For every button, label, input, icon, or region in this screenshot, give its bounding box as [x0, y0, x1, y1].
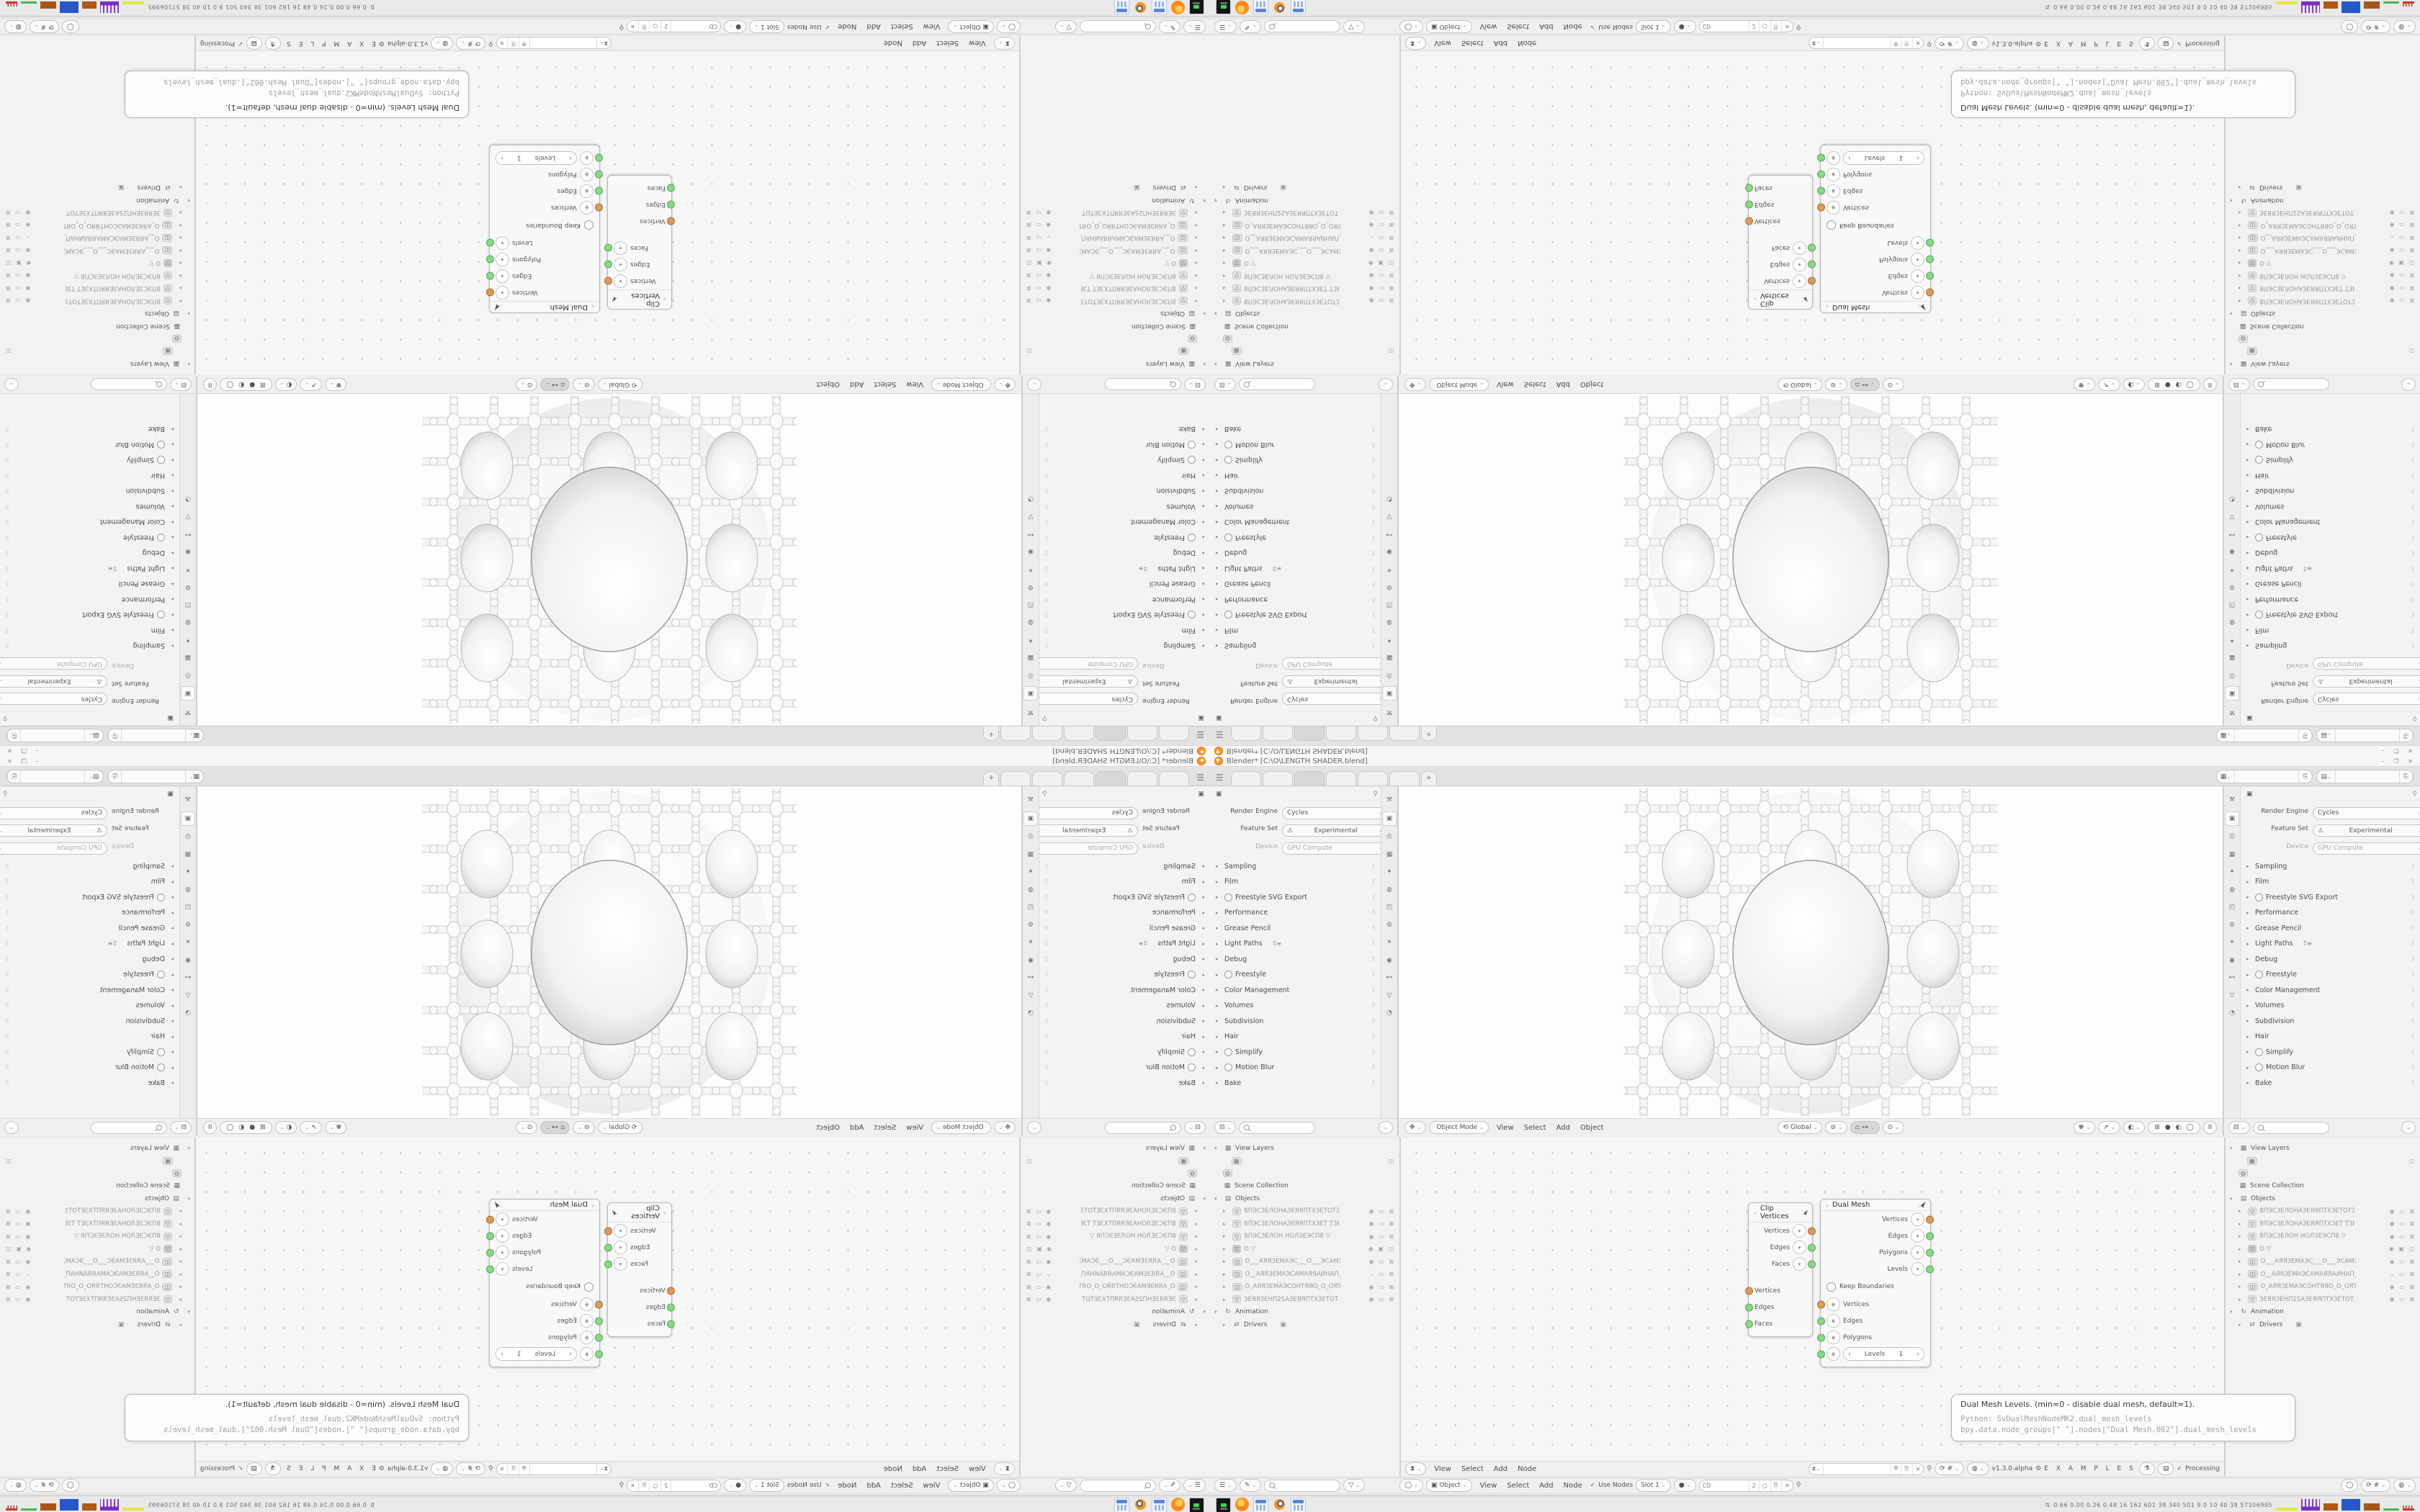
- render-engine-select[interactable]: Cycles⌄: [1282, 807, 1381, 819]
- snap-toggle[interactable]: ⩍⊶⌄: [540, 1121, 570, 1134]
- shader-circle-button[interactable]: ◯: [62, 20, 79, 33]
- properties-tab[interactable]: ◰: [181, 901, 194, 914]
- taskbar-app-icon[interactable]: [1171, 1498, 1185, 1511]
- view-layer-chip[interactable]: ▦: [1232, 1157, 1242, 1165]
- use-nodes-check[interactable]: ✓: [825, 1482, 830, 1489]
- panel-toggle[interactable]: [1224, 1048, 1232, 1056]
- shader-menu-item[interactable]: Select: [886, 1482, 918, 1490]
- keep-boundaries-row[interactable]: Keep Boundaries: [490, 1277, 599, 1296]
- feature-set-select[interactable]: ⚠Experimental⌄: [0, 675, 107, 688]
- properties-tab[interactable]: ⚙: [1383, 919, 1396, 932]
- outliner-object-row[interactable]: ▸ ▽ 8ПЭСЗЕЛОНАЗЕЯЯПТХЗЕТОТЗЕ) ◉ ▭ ⊠: [3, 1205, 181, 1218]
- workspace-tab[interactable]: [1294, 771, 1325, 786]
- taskbar-app-icon[interactable]: [1273, 1, 1286, 15]
- properties-search-input[interactable]: [1239, 379, 1315, 391]
- properties-tab[interactable]: ⚒: [1383, 706, 1396, 719]
- input-socket-row[interactable]: ⋕ Vertices: [490, 1296, 599, 1313]
- properties-tab[interactable]: ✴: [1024, 563, 1037, 576]
- collapse-icon[interactable]: ⌄: [1753, 1210, 1757, 1215]
- output-socket-row[interactable]: Vertices ▾: [608, 273, 671, 289]
- properties-tab[interactable]: ▽: [2226, 989, 2238, 1002]
- scene-name-field[interactable]: [121, 729, 185, 742]
- pin-icon[interactable]: ⚲: [488, 40, 493, 47]
- shader-browse-button[interactable]: ⟳#⌄: [2361, 1479, 2390, 1492]
- snap-toggle[interactable]: ⩍⊶⌄: [540, 378, 570, 391]
- outliner-tree[interactable]: ▾▦View Layers ▦◫ ◍ ▦Scene Collection ▾▤O…: [1021, 1140, 1210, 1476]
- proportional-edit-select[interactable]: ⊙⌄: [1883, 378, 1904, 391]
- editor-type-select[interactable]: ⊟⌄: [1184, 1121, 1206, 1134]
- panel-toggle[interactable]: [1224, 441, 1232, 449]
- input-socket-row[interactable]: ⋕ Polygons: [1821, 166, 1930, 183]
- render-panel-row[interactable]: ▸ Sampling ⠿: [1216, 638, 1378, 654]
- properties-tab[interactable]: ▣: [181, 687, 195, 701]
- output-socket-row[interactable]: Faces ▾: [1749, 240, 1812, 256]
- output-socket-row[interactable]: Edges ▾: [608, 256, 671, 273]
- render-panel-row[interactable]: ▸ Hair ⠿: [1042, 1029, 1204, 1045]
- properties-tab[interactable]: ▦: [1024, 848, 1037, 861]
- properties-tab[interactable]: ▦: [181, 652, 194, 665]
- close-button[interactable]: ✕: [2405, 748, 2416, 755]
- render-panel-row[interactable]: ▸ Freestyle ⠿: [3, 967, 174, 983]
- proportional-edit-select[interactable]: ⊙⌄: [1883, 1121, 1904, 1134]
- view-layer-selector[interactable]: ▤⌄ ⎘: [6, 729, 104, 742]
- shader-menu-item[interactable]: Node: [833, 23, 861, 31]
- shader-browse-button[interactable]: ⟳#⌄: [30, 1479, 59, 1492]
- sverchok-node-editor[interactable]: ⌄ Clip Vertices Vertices ▾ Edges: [1401, 36, 2224, 374]
- properties-tab[interactable]: ◉: [1024, 954, 1037, 967]
- app-menu-icon[interactable]: ☰: [1196, 729, 1204, 739]
- bake-button[interactable]: ⚗: [265, 37, 281, 50]
- object-visibility-icons[interactable]: ⌄ ▭ ⊠: [2390, 1271, 2417, 1277]
- input-socket-row[interactable]: Edges: [608, 1299, 671, 1315]
- properties-tab[interactable]: ▣: [1382, 811, 1397, 826]
- editor-type-select[interactable]: ⊟⌄: [2228, 1121, 2250, 1134]
- scene-selector[interactable]: ▦⌄ ⎘: [107, 729, 205, 742]
- properties-tab[interactable]: ✴: [1383, 936, 1396, 949]
- world-chip[interactable]: ◍: [1188, 1169, 1197, 1177]
- node-editor-menu-item[interactable]: Select: [931, 1465, 964, 1473]
- taskbar-app-icon[interactable]: [1114, 0, 1129, 15]
- taskbar-app-icon[interactable]: [1235, 1498, 1249, 1511]
- render-panel-row[interactable]: ▸ Subdivision ⠿: [3, 1014, 174, 1030]
- render-panel-row[interactable]: ▸ Performance ⠿: [3, 592, 174, 608]
- render-panel-row[interactable]: ▸ Freestyle ⠿: [1042, 967, 1204, 983]
- outliner-brush-select[interactable]: ✎⌄: [1159, 20, 1180, 33]
- properties-tab[interactable]: ⚙: [2226, 581, 2238, 594]
- render-panel-row[interactable]: ▸ Bake ⠿: [2246, 421, 2417, 437]
- object-visibility-icons[interactable]: ⌄ ▭ ⊠: [1023, 235, 1051, 241]
- properties-tab[interactable]: ◍: [1383, 616, 1396, 629]
- object-visibility-icons[interactable]: ◉ ▣ ◫: [1023, 1246, 1052, 1252]
- properties-tab[interactable]: ⚒: [2226, 706, 2238, 719]
- object-visibility-icons[interactable]: ◉ ▭ ⊠: [1369, 1259, 1397, 1265]
- render-panel-row[interactable]: ▸ Debug ⠿: [3, 545, 174, 561]
- render-panel-row[interactable]: ▸ Film ⠿: [2246, 623, 2417, 639]
- properties-tab[interactable]: ⚒: [181, 793, 194, 806]
- keep-boundaries-row[interactable]: Keep Boundaries: [1821, 1277, 1930, 1296]
- render-panel-row[interactable]: ▸ Freestyle ⠿: [3, 530, 174, 546]
- bake-button[interactable]: ⚗: [265, 1462, 281, 1475]
- pin-icon[interactable]: ⚲: [488, 1466, 493, 1472]
- outliner-object-row[interactable]: ▸ ▽ 8ПЭСЗЕЛОНАЗЕЯЯПТХЗЕТОТЗЕ) ◉ ▭ ⊠: [1223, 294, 1397, 307]
- render-panel-row[interactable]: ▸ Motion Blur ⠿: [1042, 1060, 1204, 1076]
- node-canvas[interactable]: ⌄ Clip Vertices Vertices ▾ Edges: [196, 1138, 1019, 1461]
- view-layer-name-field[interactable]: [2336, 729, 2400, 742]
- properties-search-input[interactable]: [91, 379, 167, 391]
- render-panel-row[interactable]: ▸ Debug ⠿: [1042, 952, 1204, 968]
- render-panel-row[interactable]: ▸ Simplify ⠿: [3, 1045, 174, 1061]
- object-visibility-icons[interactable]: ◉ ▭ ⊠: [3, 1259, 30, 1265]
- render-panel-row[interactable]: ▸ Subdivision ⠿: [1216, 1014, 1378, 1030]
- render-panel-row[interactable]: ▸ Performance ⠿: [2246, 905, 2417, 921]
- node-clip-vertices[interactable]: ⌄ Clip Vertices Vertices ▾ Edges: [607, 1202, 672, 1337]
- object-visibility-icons[interactable]: ◉ ▭ ⊠: [1369, 1296, 1397, 1302]
- render-panel-row[interactable]: ▸ Hair ⠿: [3, 468, 174, 484]
- properties-tab[interactable]: ▣: [181, 811, 195, 826]
- render-panel-row[interactable]: ▸ Bake ⠿: [1216, 421, 1378, 437]
- node-canvas[interactable]: ⌄ Clip Vertices Vertices ▾ Edges: [196, 51, 1019, 374]
- outliner-search-input[interactable]: [1080, 21, 1156, 33]
- layout-button[interactable]: ▤: [2158, 37, 2174, 50]
- editor-type-select[interactable]: ⧗⌄: [994, 37, 1015, 50]
- workspace-tab[interactable]: [1095, 726, 1126, 741]
- render-panel-row[interactable]: ▸ Simplify ⠿: [2246, 452, 2417, 468]
- tree-name[interactable]: E X A M P L E S: [2044, 1465, 2136, 1472]
- properties-search-input[interactable]: [91, 1122, 167, 1134]
- outliner-search-input[interactable]: [1080, 1480, 1156, 1492]
- input-socket-row[interactable]: ⋕ Edges: [490, 1313, 599, 1329]
- input-socket-row[interactable]: ⋕ Edges: [1821, 1313, 1930, 1329]
- render-panel-row[interactable]: ▸ Film ⠿: [2246, 874, 2417, 890]
- view-layer-copy-icon[interactable]: ⎘: [2400, 770, 2413, 783]
- outliner-tree[interactable]: ▾▦View Layers ▦◫ ◍ ▦Scene Collection ▾▤O…: [1210, 36, 1399, 372]
- properties-tab[interactable]: ◰: [1024, 901, 1037, 914]
- node-title[interactable]: Dual Mesh: [1832, 303, 1870, 311]
- input-socket-row[interactable]: Vertices: [608, 1282, 671, 1299]
- outliner-object-row[interactable]: ▸ ◫ O_АЯЯЗЕМАЭСОНТЯЯО_O_ОЯТН ◉ ▭ ⊠: [3, 1281, 181, 1294]
- pin-icon[interactable]: ⚲: [1042, 714, 1047, 721]
- workspace-tab[interactable]: [1358, 771, 1388, 786]
- maximize-button[interactable]: ❐: [2390, 748, 2401, 755]
- taskbar-app-icon[interactable]: [1253, 1498, 1268, 1512]
- properties-tab[interactable]: ◰: [2226, 598, 2238, 611]
- outliner-object-row[interactable]: ▸ ◫ O_АЯЯЗЕМАЭСОНТЯЯО_O_ОЯТН ◉ ▭ ⊠: [1023, 219, 1197, 232]
- tree-name-group[interactable]: ⧗⌄ ⛨ ⎘ ✕: [496, 1463, 612, 1475]
- use-nodes-check[interactable]: ✓: [825, 23, 830, 30]
- render-panel-row[interactable]: ▸ Bake ⠿: [1042, 421, 1204, 437]
- workspace-tab[interactable]: [1032, 771, 1062, 786]
- render-panel-row[interactable]: ▸ Volumes ⠿: [1042, 499, 1204, 515]
- add-workspace-tab[interactable]: +: [983, 771, 999, 786]
- shading-mode-buttons[interactable]: ⊞●◐◯: [220, 378, 272, 391]
- render-engine-select[interactable]: Cycles⌄: [0, 807, 107, 819]
- object-visibility-icons[interactable]: ◉ ▣ ◫: [3, 260, 31, 266]
- transform-orientation-select[interactable]: ⟲Global⌄: [598, 1121, 642, 1134]
- workspace-tab[interactable]: [1127, 726, 1157, 741]
- node-editor-menu-item[interactable]: View: [1429, 40, 1456, 48]
- material-preview-select[interactable]: ●⌄: [1674, 1479, 1696, 1492]
- render-panel-row[interactable]: ▸ Grease Pencil ⠿: [3, 576, 174, 592]
- properties-tab[interactable]: ⊷: [1383, 528, 1396, 541]
- panel-toggle[interactable]: [2255, 441, 2263, 449]
- render-panel-row[interactable]: ▸ Grease Pencil ⠿: [1216, 576, 1378, 592]
- outliner-object-row[interactable]: ▸ ▽ ЗЕЯЯЗЕНП2SАЗЕЯЯПТХЗЕТОТЗЕ ◉ ▭ ⊠: [3, 1293, 181, 1306]
- panel-toggle[interactable]: [157, 441, 165, 449]
- input-socket-row[interactable]: Vertices: [1749, 1282, 1812, 1299]
- render-panel-row[interactable]: ▸ Hair ⠿: [1042, 468, 1204, 484]
- scene-selector[interactable]: ▦⌄ ⎘: [107, 770, 205, 783]
- properties-tab[interactable]: ◉: [2226, 546, 2238, 559]
- object-visibility-icons[interactable]: ◉ ▣ ◫: [1368, 1246, 1397, 1252]
- node-editor-menu-item[interactable]: Node: [1512, 1465, 1541, 1473]
- properties-tab[interactable]: ⚙: [1024, 919, 1037, 932]
- outliner-object-row[interactable]: ▸ ▽ O ▽ ◉ ▣ ◫: [3, 257, 181, 270]
- properties-tab[interactable]: ◉: [2226, 954, 2238, 967]
- properties-search-input[interactable]: [2253, 379, 2329, 391]
- collapse-icon[interactable]: ⌄: [591, 305, 595, 310]
- object-visibility-icons[interactable]: ◉ ▭ ⊠: [2390, 1296, 2417, 1302]
- outliner-object-row[interactable]: ▸ ◫ O__АЯЯЗЕМАЭСАМАЯЯАИНАП_С ⌄ ▭ ⊠: [1223, 232, 1397, 245]
- levels-slider-row[interactable]: ⋕ ‹ Levels 1 ›: [1821, 150, 1930, 166]
- feature-set-select[interactable]: ⚠Experimental⌄: [0, 824, 107, 837]
- properties-tab[interactable]: ▣: [2225, 811, 2239, 826]
- snap-toggle[interactable]: ⩍⊶⌄: [1850, 1121, 1880, 1134]
- outliner-object-row[interactable]: ▸ ▽ ЗЕЯЯЗЕНП2SАЗЕЯЯПТХЗЕТОТЗЕ ◉ ▭ ⊠: [3, 207, 181, 220]
- viewport-3d[interactable]: ✥⌄ Object Mode⌄ ViewSelectAddObject ⟲Glo…: [1399, 376, 2223, 726]
- panel-toggle[interactable]: [2255, 1063, 2263, 1071]
- node-dual-mesh[interactable]: ⌄ Dual Mesh Vertices ▾ Edges: [1820, 145, 1931, 313]
- panel-toggle[interactable]: [1188, 456, 1196, 464]
- keep-boundaries-toggle[interactable]: [1827, 1282, 1836, 1292]
- sverchok-node-editor[interactable]: ⌄ Clip Vertices Vertices ▾ Edges: [1401, 1138, 2224, 1476]
- overlays-select[interactable]: ✾⌄: [2074, 1121, 2095, 1134]
- browse-tree-button[interactable]: ⟳#⌄: [1935, 37, 1964, 50]
- material-name-group[interactable]: CD 2 ○ ⎘ ✕: [627, 21, 721, 33]
- window-titlebar[interactable]: Blender* [C:\O\LENGTH SHADER.blend] – ❐ …: [0, 756, 1210, 767]
- minimize-button[interactable]: –: [2378, 748, 2387, 755]
- render-panel-row[interactable]: ▸ Film ⠿: [1216, 874, 1378, 890]
- node-editor-menu-item[interactable]: Add: [907, 40, 931, 48]
- layout-button[interactable]: ▤: [246, 1462, 263, 1475]
- render-panel-row[interactable]: ▸ Debug ⠿: [1042, 545, 1204, 561]
- render-panel-row[interactable]: ▸ Grease Pencil ⠿: [1042, 576, 1204, 592]
- shader-menu-item[interactable]: View: [918, 23, 946, 31]
- outliner-object-row[interactable]: ▸ ▽ O ▽ ◉ ▣ ◫: [2238, 257, 2417, 270]
- properties-tab[interactable]: ▦: [1383, 652, 1396, 665]
- levels-slider[interactable]: ‹ Levels 1 ›: [496, 1347, 577, 1361]
- outliner-tree[interactable]: ▾▦View Layers ▦◫ ◍ ▦Scene Collection ▾▤O…: [1210, 1140, 1399, 1476]
- properties-tab[interactable]: ▣: [1023, 811, 1038, 826]
- outliner-object-row[interactable]: ▸ ▽ 8ПЭСЗЕЛОН НОЛЗЕЭСП8 ▽ ◉ ▭ ⊠: [1223, 269, 1397, 282]
- levels-slider-row[interactable]: ⋕ ‹ Levels 1 ›: [490, 1346, 599, 1362]
- levels-slider[interactable]: ‹ Levels 1 ›: [1843, 151, 1924, 165]
- world-chip[interactable]: ◍: [1223, 335, 1232, 343]
- output-socket-row[interactable]: Vertices ▾: [608, 1223, 671, 1239]
- shader-circle-button[interactable]: ◯: [62, 1479, 79, 1492]
- outliner-object-row[interactable]: ▸ ▽ 8ПЭСЗЕЛОНАЗЕЯЯПТХЗЕТ ТЗЕХ ◉ ▭ ⊠: [1023, 1218, 1197, 1230]
- view-layer-name-field[interactable]: [2336, 770, 2400, 783]
- render-panel-row[interactable]: ▸ Subdivision ⠿: [3, 483, 174, 499]
- render-panel-row[interactable]: ▸ Hair ⠿: [2246, 468, 2417, 484]
- outliner-filter-button[interactable]: ▽⌄: [1343, 1479, 1365, 1492]
- outliner-object-row[interactable]: ▸ ▽ ЗЕЯЯЗЕНП2SАЗЕЯЯПТХЗЕТОТЗЕ ◉ ▭ ⊠: [1223, 207, 1397, 220]
- properties-tab[interactable]: ⎙: [1024, 830, 1037, 843]
- object-visibility-icons[interactable]: ◉ ▭ ⊠: [1023, 1284, 1051, 1290]
- editor-type-select[interactable]: ⊟⌄: [1214, 1121, 1236, 1134]
- output-socket-row[interactable]: Faces ▾: [608, 1256, 671, 1272]
- view-layer-selector[interactable]: ▤⌄ ⎘: [2316, 729, 2414, 742]
- object-visibility-icons[interactable]: ◉ ▭ ⊠: [1023, 1233, 1051, 1240]
- shading-mode-buttons[interactable]: ⊞●◐◯: [2148, 378, 2200, 391]
- properties-tab[interactable]: ⊷: [2226, 971, 2238, 984]
- viewport-menu-item[interactable]: View: [1492, 1124, 1519, 1132]
- panel-toggle[interactable]: [157, 1048, 165, 1056]
- shading-mode-buttons[interactable]: ⊞●◐◯: [220, 1121, 272, 1134]
- workspace-tab[interactable]: [1000, 726, 1031, 741]
- outliner-object-row[interactable]: ▸ ▽ ЗЕЯЯЗЕНП2SАЗЕЯЯПТХЗЕТОТЗЕ ◉ ▭ ⊠: [2238, 1293, 2417, 1306]
- interaction-mode-icon-button[interactable]: ✥⌄: [1404, 1121, 1426, 1134]
- outliner-display-mode-select[interactable]: ☰⌄: [1214, 20, 1237, 33]
- object-visibility-icons[interactable]: ◉ ▭ ⊠: [1023, 1296, 1051, 1302]
- pin-icon[interactable]: ⚲: [1373, 791, 1378, 798]
- properties-search-input[interactable]: [1239, 1122, 1315, 1134]
- outliner-object-row[interactable]: ▸ ◫ O_АЯЯЗЕМАЭСОНТЯЯО_O_ОЯТН ◉ ▭ ⊠: [3, 219, 181, 232]
- output-socket-row[interactable]: Vertices ▾: [1821, 284, 1930, 301]
- panel-toggle[interactable]: [1188, 534, 1196, 541]
- panel-toggle[interactable]: [157, 611, 165, 618]
- node-editor-menu-item[interactable]: Select: [1456, 40, 1489, 48]
- viewport-3d[interactable]: ✥⌄ Object Mode⌄ ViewSelectAddObject ⟲Glo…: [1399, 786, 2223, 1136]
- pin-icon[interactable]: ⚲: [1373, 714, 1378, 721]
- node-canvas[interactable]: ⌄ Clip Vertices Vertices ▾ Edges: [1401, 51, 2224, 374]
- properties-tab[interactable]: ✴: [2226, 936, 2238, 949]
- pin-icon[interactable]: ⚲: [619, 24, 624, 30]
- add-workspace-tab[interactable]: +: [1421, 771, 1437, 786]
- overlays-select[interactable]: ✾⌄: [2074, 378, 2095, 391]
- shader-view-select[interactable]: ◯⌄: [1399, 1479, 1423, 1492]
- scene-copy-icon[interactable]: ⎘: [108, 729, 121, 742]
- input-socket-row[interactable]: ⋕ Edges: [1821, 183, 1930, 199]
- object-visibility-icons[interactable]: ◉ ▭ ⊠: [2390, 1259, 2417, 1265]
- globe-button[interactable]: ◍⌄: [431, 37, 453, 50]
- outliner-object-row[interactable]: ▸ ◫ O___АЯЯЗЕМАЭС___O___ЭСАМЗ ◉ ▭ ⊠: [2238, 244, 2417, 257]
- object-visibility-icons[interactable]: ◉ ▭ ⊠: [3, 285, 30, 292]
- panel-toggle[interactable]: [1188, 894, 1196, 901]
- render-panel-row[interactable]: ▸ Color Management ⠿: [3, 983, 174, 999]
- input-socket-row[interactable]: Faces: [1749, 1315, 1812, 1332]
- workspace-tab[interactable]: [1326, 771, 1356, 786]
- render-panel-row[interactable]: ▸ Performance ⠿: [2246, 592, 2417, 608]
- panel-toggle[interactable]: [157, 1063, 165, 1071]
- properties-tab[interactable]: ✦: [1383, 865, 1396, 878]
- render-panel-row[interactable]: ▸ Sampling ⠿: [3, 859, 174, 875]
- object-visibility-icons[interactable]: ◉ ▣ ◫: [3, 1246, 31, 1252]
- outliner-display-mode-select[interactable]: ☰⌄: [1214, 1479, 1237, 1492]
- outliner-object-row[interactable]: ▸ ◫ O___АЯЯЗЕМАЭС___O___ЭСАМЗ ◉ ▭ ⊠: [3, 244, 181, 257]
- render-panel-row[interactable]: ▸ Debug ⠿: [2246, 545, 2417, 561]
- panel-toggle[interactable]: [157, 534, 165, 541]
- object-visibility-icons[interactable]: ◉ ▭ ⊠: [2390, 1284, 2417, 1290]
- scene-copy-icon[interactable]: ⎘: [2299, 770, 2312, 783]
- properties-tab[interactable]: ▽: [1383, 510, 1396, 523]
- taskbar-app-icon[interactable]: [1291, 0, 1306, 15]
- workspace-tab[interactable]: [1389, 726, 1420, 741]
- scene-copy-icon[interactable]: ⎘: [2299, 729, 2312, 742]
- properties-tab[interactable]: ◔: [2226, 1007, 2238, 1020]
- shader-menu-item[interactable]: Select: [1502, 23, 1534, 31]
- render-panel-row[interactable]: ▸ Freestyle ⠿: [2246, 530, 2417, 546]
- render-panel-row[interactable]: ▸ Volumes ⠿: [1216, 499, 1378, 515]
- mode-select[interactable]: Object Mode⌄: [1429, 378, 1489, 391]
- object-visibility-icons[interactable]: ◉ ▭ ⊠: [3, 1296, 30, 1302]
- render-panel-row[interactable]: ▸ Bake ⠿: [3, 421, 174, 437]
- gizmo-select[interactable]: ◐⌄: [275, 1121, 297, 1134]
- add-workspace-tab[interactable]: +: [1421, 726, 1437, 741]
- object-visibility-icons[interactable]: ◉ ▭ ⊠: [2390, 1220, 2417, 1227]
- render-panel-row[interactable]: ▸ Freestyle ⠿: [1042, 530, 1204, 546]
- outliner-search-input[interactable]: [1264, 1480, 1340, 1492]
- taskbar-app-icon[interactable]: [1216, 0, 1231, 15]
- render-panel-row[interactable]: ▸ Sampling ⠿: [3, 638, 174, 654]
- tree-name-group[interactable]: ⧗⌄ ⛨ ⎘ ✕: [496, 37, 612, 50]
- workspace-tab[interactable]: [1326, 726, 1356, 741]
- outliner-object-row[interactable]: ▸ ▽ 8ПЭСЗЕЛОН НОЛЗЕЭСП8 ▽ ◉ ▭ ⊠: [1023, 269, 1197, 282]
- pin-icon[interactable]: ⚲: [2412, 791, 2417, 798]
- render-panel-row[interactable]: ▸ Motion Blur ⠿: [3, 437, 174, 453]
- properties-tab[interactable]: ▽: [181, 989, 194, 1002]
- properties-tab[interactable]: ⚒: [1024, 706, 1037, 719]
- properties-options-button[interactable]: ⌄: [1379, 378, 1393, 391]
- material-slot-select[interactable]: Slot 1⌄: [749, 20, 784, 33]
- input-socket-row[interactable]: ⋕ Vertices: [1821, 199, 1930, 216]
- pause-button[interactable]: II: [2203, 1121, 2217, 1134]
- properties-tab[interactable]: ▽: [2226, 510, 2238, 523]
- gear-icon[interactable]: ⚙: [379, 1466, 385, 1472]
- panel-toggle[interactable]: [1188, 611, 1196, 618]
- outliner-object-row[interactable]: ▸ ◫ O_АЯЯЗЕМАЭСОНТЯЯО_O_ОЯТН ◉ ▭ ⊠: [2238, 219, 2417, 232]
- gear-icon[interactable]: ⚙: [2035, 1466, 2041, 1472]
- world-chip[interactable]: ◍: [172, 335, 181, 343]
- outliner-display-mode-select[interactable]: ☰⌄: [1183, 20, 1206, 33]
- node-editor-menu-item[interactable]: Add: [1489, 1465, 1512, 1473]
- minimize-button[interactable]: –: [2378, 758, 2387, 765]
- window-titlebar[interactable]: Blender* [C:\O\LENGTH SHADER.blend] – ❐ …: [1210, 745, 2420, 756]
- levels-slider[interactable]: ‹ Levels 1 ›: [496, 151, 577, 165]
- node-title[interactable]: Dual Mesh: [550, 303, 588, 311]
- shader-menu-item[interactable]: Node: [833, 1482, 861, 1490]
- scene-name-field[interactable]: [2235, 729, 2299, 742]
- object-visibility-icons[interactable]: ◉ ▭ ⊠: [1369, 1220, 1397, 1227]
- input-socket-row[interactable]: Faces: [1749, 180, 1812, 197]
- outliner-object-row[interactable]: ▸ ▽ 8ПЭСЗЕЛОНАЗЕЯЯПТХЗЕТ ТЗЕХ ◉ ▭ ⊠: [3, 1218, 181, 1230]
- input-socket-row[interactable]: ⋕ Vertices: [1821, 1296, 1930, 1313]
- shader-view-select[interactable]: ◯⌄: [1399, 20, 1423, 33]
- workspace-tab[interactable]: [1095, 771, 1126, 786]
- panel-toggle[interactable]: [2255, 534, 2263, 541]
- properties-tab[interactable]: ▽: [181, 510, 194, 523]
- taskbar-app-icon[interactable]: [1171, 1, 1185, 15]
- taskbar-app-icon[interactable]: [1134, 1, 1147, 15]
- browse-tree-button[interactable]: ⟳#⌄: [1935, 1462, 1964, 1475]
- viewport-menu-item[interactable]: Add: [845, 381, 869, 389]
- editor-type-select[interactable]: ⧗⌄: [994, 1462, 1015, 1475]
- add-workspace-tab[interactable]: +: [983, 726, 999, 741]
- outliner-object-row[interactable]: ▸ ◫ O___АЯЯЗЕМАЭС___O___ЭСАМЗ ◉ ▭ ⊠: [2238, 1256, 2417, 1269]
- render-panel-row[interactable]: ▸ Color Management ⠿: [2246, 514, 2417, 530]
- viewport-canvas[interactable]: [1399, 394, 2223, 726]
- shader-globe-button[interactable]: ◍⌄: [4, 20, 27, 33]
- properties-tab[interactable]: ✦: [181, 634, 194, 647]
